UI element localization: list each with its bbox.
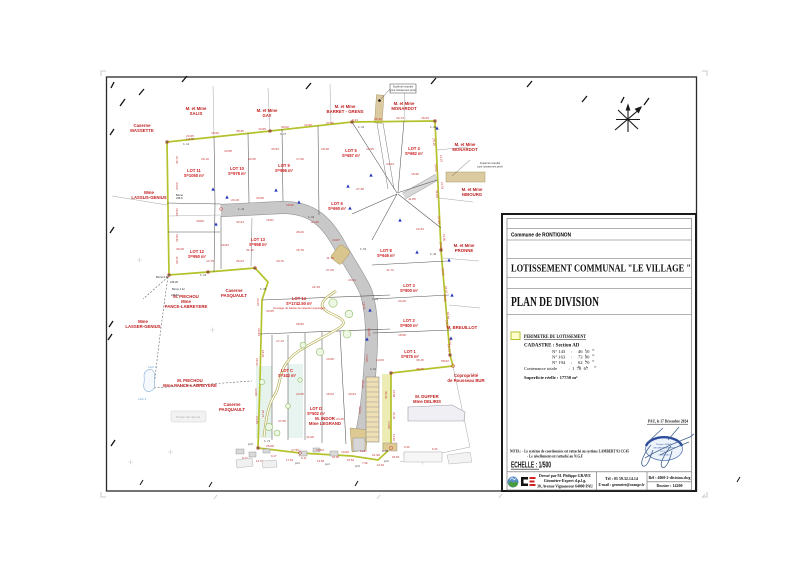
svg-text:PRONNE: PRONNE (455, 248, 474, 253)
svg-text:PLAN DE DIVISION: PLAN DE DIVISION (511, 294, 599, 309)
svg-text:S=690 m²: S=690 m² (328, 206, 347, 211)
svg-text:Superficie réelle : 17750 m²: Superficie réelle : 17750 m² (524, 375, 578, 380)
svg-text:S=966 m²: S=966 m² (275, 168, 294, 173)
svg-text:26.81: 26.81 (443, 294, 447, 302)
svg-text:MONARDOT: MONARDOT (391, 106, 417, 111)
svg-text:10.70: 10.70 (276, 259, 284, 263)
svg-text:30.15: 30.15 (416, 358, 424, 362)
svg-text:pv.4: pv.4 (325, 462, 330, 466)
svg-text:12.95: 12.95 (366, 147, 374, 151)
svg-text:Mme DELIRIS: Mme DELIRIS (413, 399, 441, 404)
svg-text:11.76: 11.76 (326, 256, 334, 260)
svg-text:pv.6: pv.6 (384, 459, 389, 463)
svg-text:17.64: 17.64 (286, 458, 293, 462)
svg-text:CADASTRE : Section AD: CADASTRE : Section AD (524, 344, 580, 349)
svg-text:19.41: 19.41 (448, 338, 452, 346)
svg-text:pour lotissement privé: pour lotissement privé (477, 165, 503, 169)
svg-text:NIBOURG: NIBOURG (462, 192, 483, 197)
svg-text:14.66: 14.66 (365, 354, 369, 362)
svg-text:34.05: 34.05 (175, 182, 179, 190)
svg-text:(A usage de bassin de rétentio: (A usage de bassin de rétention paysagé) (273, 306, 325, 310)
svg-text:12.46: 12.46 (377, 463, 384, 467)
svg-text:MONARDOT: MONARDOT (452, 147, 478, 152)
svg-text:b.40: b.40 (430, 252, 437, 256)
svg-text:13.25: 13.25 (445, 320, 449, 328)
svg-text:16.52: 16.52 (347, 458, 354, 462)
svg-text:113.86: 113.86 (186, 137, 194, 141)
svg-text:Mme PANCE-LABREYERE: Mme PANCE-LABREYERE (163, 383, 217, 388)
svg-text:- Le nivellement est rattaché: - Le nivellement est rattaché au N.G.F (527, 455, 584, 459)
svg-text:27.38: 27.38 (356, 187, 364, 191)
svg-text:19.95: 19.95 (258, 127, 266, 131)
svg-text:b.31: b.31 (358, 125, 365, 129)
svg-text:17.13: 17.13 (276, 339, 284, 343)
svg-text:15.78: 15.78 (296, 248, 304, 252)
svg-text:b.35: b.35 (260, 287, 267, 291)
svg-text:15.88: 15.88 (392, 390, 396, 398)
svg-text:11.95: 11.95 (175, 256, 179, 264)
svg-text:16.00: 16.00 (442, 234, 446, 242)
svg-text:21.40: 21.40 (175, 156, 179, 164)
svg-text:28.40: 28.40 (255, 358, 259, 366)
svg-text:SALIS: SALIS (190, 111, 203, 116)
svg-text:18.80: 18.80 (196, 219, 204, 223)
svg-text:b.72: b.72 (264, 439, 271, 443)
svg-text:S=958 m²: S=958 m² (249, 242, 268, 247)
svg-text:pv.5: pv.5 (355, 464, 360, 468)
svg-text:27.86: 27.86 (326, 121, 334, 125)
svg-text:58.62: 58.62 (441, 359, 449, 363)
svg-text:17.55: 17.55 (291, 448, 299, 452)
svg-text:b.27: b.27 (280, 132, 287, 136)
svg-text:21.53: 21.53 (440, 182, 444, 190)
svg-text:22.18: 22.18 (312, 285, 320, 289)
svg-text:PAU, le 17 Décembre 2024: PAU, le 17 Décembre 2024 (648, 419, 689, 424)
svg-text:28.60: 28.60 (296, 322, 304, 326)
svg-text:24.43: 24.43 (386, 162, 394, 166)
svg-text:33.65: 33.65 (266, 309, 274, 313)
svg-text:de Rousseau BUR: de Rousseau BUR (447, 378, 485, 383)
svg-text:31.08: 31.08 (435, 190, 439, 198)
svg-text:LASSER-GENIUS: LASSER-GENIUS (125, 324, 160, 329)
svg-text:Tél : 05 59.32.14.14: Tél : 05 59.32.14.14 (605, 476, 638, 481)
svg-text:PASQUAULT: PASQUAULT (221, 293, 247, 298)
svg-text:24.39: 24.39 (311, 220, 319, 224)
svg-text:30, Avenue Vignancour 64000 PA: 30, Avenue Vignancour 64000 PAU (537, 484, 593, 489)
svg-text:b.44: b.44 (238, 207, 245, 211)
svg-text:12.88: 12.88 (254, 388, 258, 396)
svg-text:13.50: 13.50 (341, 450, 349, 454)
svg-text:15.81: 15.81 (266, 218, 274, 222)
svg-text:34.45: 34.45 (256, 298, 260, 306)
svg-text:Dossier : 14200: Dossier : 14200 (657, 483, 683, 488)
svg-text:S=342 m²: S=342 m² (278, 373, 297, 378)
svg-text:18.93: 18.93 (348, 392, 356, 396)
svg-text:6.11: 6.11 (301, 456, 307, 460)
svg-text:17.44: 17.44 (437, 216, 441, 224)
svg-text:b.08: b.08 (430, 125, 437, 129)
svg-text:26.10: 26.10 (201, 157, 209, 161)
svg-text:28.29: 28.29 (296, 230, 304, 234)
svg-text:b.12: b.12 (183, 142, 190, 146)
svg-text:PERIMETRE DU LOTISSEMENT: PERIMETRE DU LOTISSEMENT (524, 334, 586, 340)
svg-text:30.62: 30.62 (281, 125, 289, 129)
svg-text:Géomètre-Expert d.p.l.g.: Géomètre-Expert d.p.l.g. (544, 478, 586, 483)
svg-text:22.05: 22.05 (248, 157, 256, 161)
svg-text:LAC 1: LAC 1 (148, 365, 157, 369)
svg-text:PASQUAULT: PASQUAULT (219, 407, 245, 412)
svg-text:246.36: 246.36 (170, 280, 178, 284)
svg-text:Mme LEGRAND: Mme LEGRAND (309, 421, 341, 426)
svg-text:pv.3: pv.3 (295, 461, 300, 465)
svg-text:23.90: 23.90 (439, 242, 443, 250)
svg-text:27.25: 27.25 (326, 268, 334, 272)
svg-text:b.61: b.61 (370, 367, 377, 371)
svg-text:24.47: 24.47 (444, 286, 448, 294)
svg-text:11.81: 11.81 (360, 449, 367, 453)
svg-text:LAC 2: LAC 2 (138, 397, 147, 401)
svg-text:7.99: 7.99 (362, 461, 368, 465)
svg-text:23.45: 23.45 (336, 417, 344, 421)
svg-text:b.19: b.19 (308, 215, 315, 219)
svg-text:ECHELLE : 1/500: ECHELLE : 1/500 (511, 461, 551, 470)
svg-text:b.55: b.55 (382, 449, 389, 453)
svg-text:25.16: 25.16 (432, 138, 436, 146)
svg-text:15.60: 15.60 (211, 131, 219, 135)
svg-text:S=950 m²: S=950 m² (188, 254, 207, 259)
svg-text:21.98: 21.98 (372, 453, 380, 457)
svg-text:GAY: GAY (263, 113, 272, 118)
svg-text:26.23: 26.23 (236, 259, 244, 263)
svg-text:10.94: 10.94 (446, 312, 450, 320)
svg-text:22.73: 22.73 (396, 116, 404, 120)
svg-text:9.41: 9.41 (352, 118, 358, 122)
svg-text:11.82: 11.82 (392, 434, 396, 441)
svg-text:19.37: 19.37 (441, 268, 445, 276)
svg-text:29.03: 29.03 (316, 448, 324, 452)
svg-text:S=657 m²: S=657 m² (342, 153, 361, 158)
svg-text:16.93: 16.93 (257, 328, 261, 336)
svg-text:18.29: 18.29 (261, 350, 265, 358)
svg-text:25.76: 25.76 (261, 410, 265, 418)
svg-text:pour lotissement privé: pour lotissement privé (390, 88, 416, 92)
svg-text:6.34: 6.34 (432, 447, 438, 451)
svg-text:Réf : 4060-2-division.dwg: Réf : 4060-2-division.dwg (649, 475, 691, 480)
svg-text:BARRET - GRENS: BARRET - GRENS (326, 109, 363, 114)
svg-text:22.35: 22.35 (392, 412, 396, 420)
svg-text:23.20: 23.20 (398, 299, 406, 303)
svg-text:LOTISSEMENT COMMUNAL "LE VIL: LOTISSEMENT COMMUNAL "LE VILLAGE " (511, 264, 691, 275)
svg-text:MASSETTE: MASSETTE (130, 128, 154, 133)
svg-text:S=800 m²: S=800 m² (400, 288, 419, 293)
svg-text:32.34: 32.34 (236, 220, 244, 224)
svg-text:Commune de RONTIGNON: Commune de RONTIGNON (511, 233, 571, 239)
svg-text:18.68: 18.68 (398, 333, 406, 337)
svg-text:S=1050 m²: S=1050 m² (184, 173, 205, 178)
svg-text:16.82: 16.82 (175, 208, 179, 216)
svg-text:17.00: 17.00 (296, 157, 304, 161)
svg-text:S=646 m²: S=646 m² (377, 253, 396, 258)
svg-text:12.07: 12.07 (439, 155, 443, 163)
svg-text:9.17: 9.17 (271, 454, 277, 458)
svg-text:NOTA : - Le système de coordo: NOTA : - Le système de coordonnées est r… (510, 450, 629, 454)
svg-text:S=682 m²: S=682 m² (405, 151, 424, 156)
svg-text:28.30: 28.30 (175, 234, 179, 242)
svg-text:10.92: 10.92 (286, 203, 294, 207)
svg-text:pv.8: pv.8 (248, 442, 253, 446)
svg-text:24.55: 24.55 (296, 392, 304, 396)
svg-text:13.58: 13.58 (317, 459, 324, 463)
svg-text:20.18: 20.18 (231, 198, 239, 202)
svg-text:28.48: 28.48 (321, 147, 329, 151)
svg-text:Système incendie: Système incendie (393, 85, 414, 89)
svg-text:24.35: 24.35 (255, 416, 259, 424)
svg-text:26.13: 26.13 (361, 380, 365, 388)
svg-text:246.9: 246.9 (176, 196, 183, 200)
svg-text:14.88: 14.88 (387, 421, 391, 429)
svg-text:S=800 m²: S=800 m² (400, 323, 419, 328)
svg-text:13.08: 13.08 (326, 357, 334, 361)
svg-text:16.87: 16.87 (332, 238, 340, 242)
svg-text:12.50: 12.50 (304, 123, 312, 127)
svg-text:10.05: 10.05 (332, 455, 339, 459)
svg-text:Borne 1.12: Borne 1.12 (172, 287, 185, 291)
svg-text:31.30: 31.30 (246, 248, 254, 252)
svg-text:PANCE-LABREYERE: PANCE-LABREYERE (165, 304, 208, 309)
svg-text:33.65: 33.65 (256, 196, 264, 200)
svg-text:14.62: 14.62 (434, 164, 438, 172)
svg-text:S=978 m²: S=978 m² (228, 171, 247, 176)
svg-text:E-mail : geometre@orange.fr: E-mail : geometre@orange.fr (599, 482, 645, 487)
svg-text:9.40: 9.40 (404, 445, 410, 449)
svg-text:b.52: b.52 (360, 247, 367, 251)
svg-text:b.23: b.23 (372, 297, 379, 301)
svg-text:245.81: 245.81 (171, 293, 179, 297)
svg-text:33.53: 33.53 (271, 147, 279, 151)
svg-text:36.09: 36.09 (416, 367, 424, 371)
svg-text:25.08: 25.08 (266, 444, 274, 448)
svg-text:M. BREUILLOT: M. BREUILLOT (447, 325, 478, 330)
svg-text:19.83: 19.83 (221, 243, 229, 247)
svg-text:14.75: 14.75 (206, 259, 214, 263)
svg-text:35.10: 35.10 (374, 117, 382, 121)
svg-text:11.98: 11.98 (306, 435, 314, 439)
svg-text:27.50: 27.50 (278, 419, 286, 423)
svg-text:S=502 m²: S=502 m² (307, 411, 326, 416)
svg-text:b.16: b.16 (200, 273, 207, 277)
svg-text:16.03: 16.03 (326, 392, 334, 396)
svg-text:Système incendie: Système incendie (480, 161, 501, 165)
svg-text:14.63: 14.63 (376, 358, 384, 362)
svg-text:23.33: 23.33 (416, 227, 424, 231)
svg-text:30.40: 30.40 (384, 391, 388, 399)
svg-text:18.20: 18.20 (421, 116, 429, 120)
svg-text:38.45: 38.45 (236, 129, 244, 133)
svg-text:18.71: 18.71 (362, 302, 367, 310)
svg-text:30.19: 30.19 (367, 328, 371, 336)
svg-text:11.85: 11.85 (408, 197, 416, 201)
svg-text:30.28: 30.28 (176, 247, 184, 251)
svg-text:18.93: 18.93 (392, 455, 399, 459)
svg-text:Terrain des Sports: Terrain des Sports (176, 415, 201, 419)
svg-text:11.73: 11.73 (386, 268, 394, 272)
svg-text:12.61: 12.61 (358, 406, 362, 414)
svg-text:LASSUS-GENIUS: LASSUS-GENIUS (131, 195, 166, 200)
svg-text:15.90: 15.90 (411, 172, 419, 176)
svg-text:10.58: 10.58 (224, 149, 232, 153)
svg-text:23.24: 23.24 (348, 278, 356, 282)
